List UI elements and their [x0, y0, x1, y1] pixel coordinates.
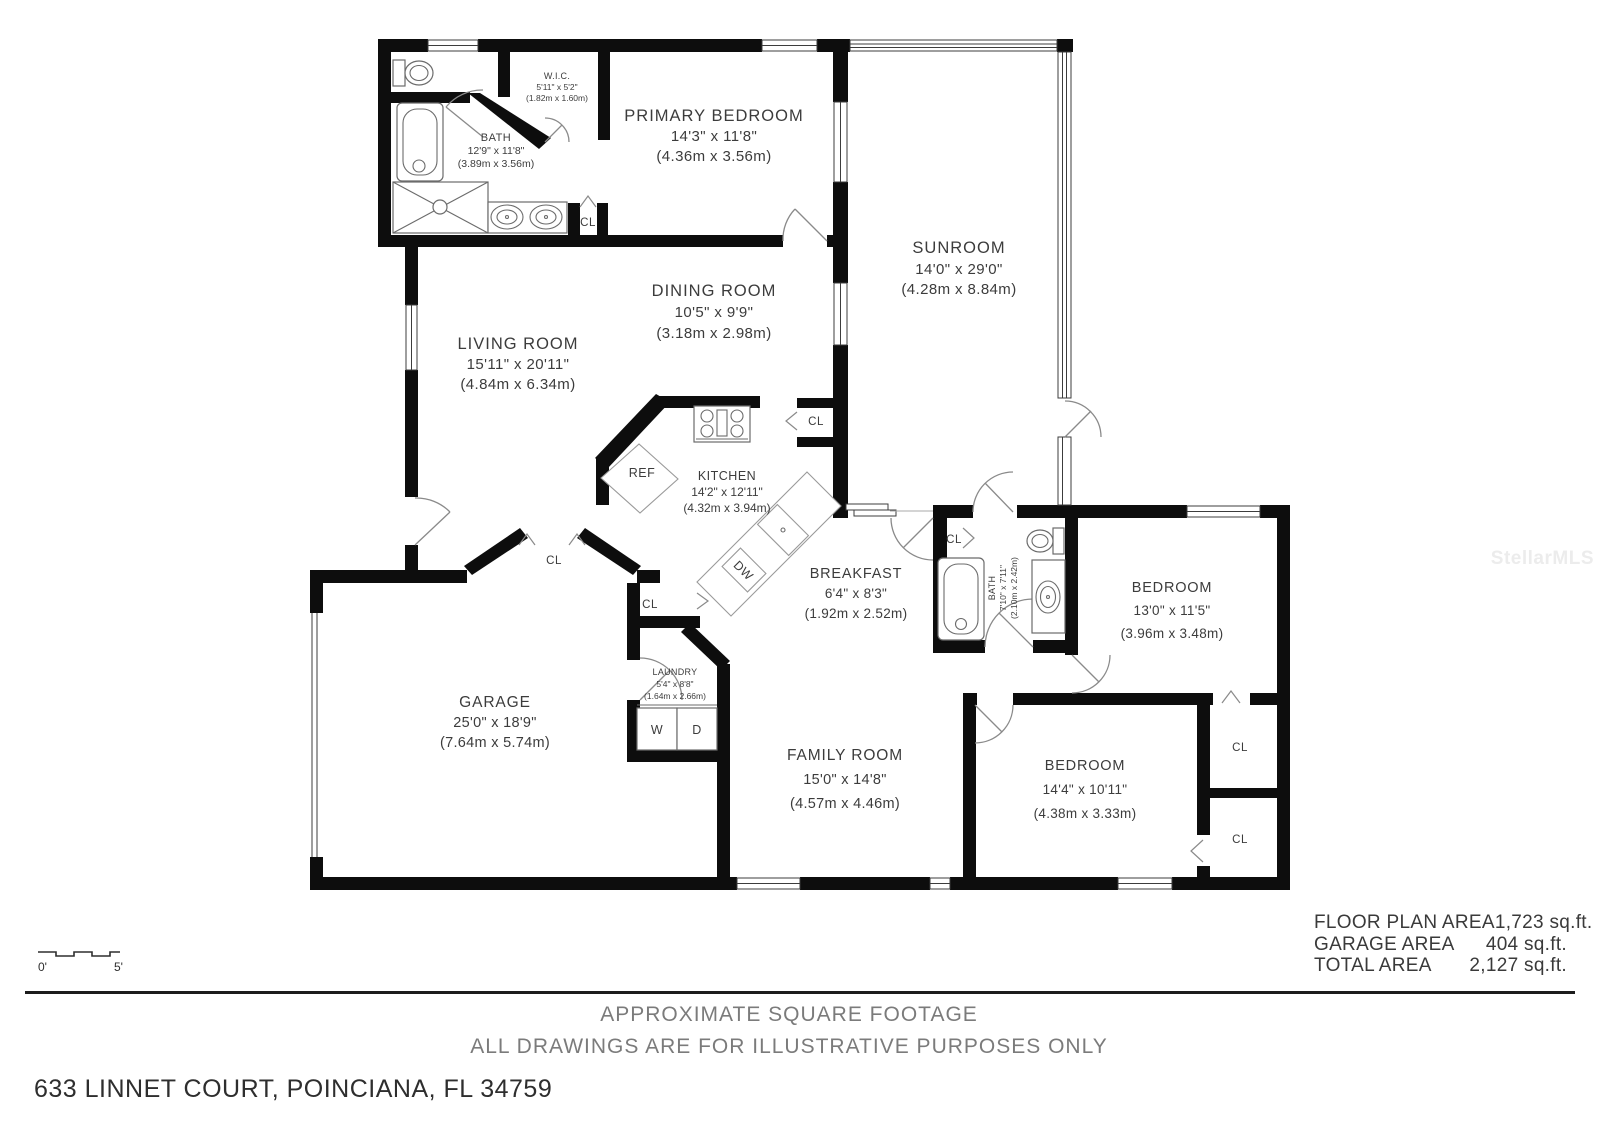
window-bath-top	[428, 40, 478, 51]
bathtub-icon	[397, 103, 443, 181]
area-value: 1,723 sq.ft.	[1495, 912, 1593, 934]
svg-text:7'10" x 7'11": 7'10" x 7'11"	[998, 565, 1008, 611]
scale-five-label: 5'	[114, 960, 123, 974]
svg-text:14'2" x 12'11": 14'2" x 12'11"	[691, 485, 763, 499]
room-label-breakfast: BREAKFAST 6'4" x 8'3" (1.92m x 2.52m)	[805, 566, 908, 621]
window-bedroom-bottom	[1118, 878, 1172, 889]
scale-zero-label: 0'	[38, 960, 47, 974]
dryer-label: D	[692, 723, 702, 737]
svg-text:LIVING ROOM: LIVING ROOM	[457, 335, 578, 353]
area-label: GARAGE AREA	[1314, 934, 1455, 956]
svg-text:BEDROOM: BEDROOM	[1132, 580, 1213, 596]
svg-text:10'5" x 9'9": 10'5" x 9'9"	[675, 304, 754, 321]
svg-text:6'4" x 8'3": 6'4" x 8'3"	[825, 586, 887, 601]
area-value: 404 sq.ft.	[1486, 934, 1567, 956]
svg-text:(4.38m x 3.33m): (4.38m x 3.33m)	[1034, 806, 1137, 821]
room-label-bath-hall: BATH 7'10" x 7'11" (2.10m x 2.42m)	[987, 557, 1019, 619]
svg-text:BREAKFAST: BREAKFAST	[810, 566, 903, 582]
toilet-icon	[393, 60, 433, 86]
area-row-floor-plan: FLOOR PLAN AREA 1,723 sq.ft.	[1314, 912, 1567, 934]
room-label-living-room: LIVING ROOM 15'11" x 20'11" (4.84m x 6.3…	[457, 335, 578, 393]
window-hall-bottom	[930, 878, 950, 889]
window-sunroom-right-lower	[1058, 437, 1071, 505]
wic-door	[545, 118, 569, 142]
bedroom-bottom-door	[975, 705, 1013, 743]
washer-label: W	[651, 723, 663, 737]
svg-text:13'0" x 11'5": 13'0" x 11'5"	[1134, 603, 1211, 618]
window-sunroom-right-upper	[1058, 52, 1071, 398]
svg-text:(3.96m x 3.48m): (3.96m x 3.48m)	[1121, 626, 1224, 641]
svg-text:(4.28m x 8.84m): (4.28m x 8.84m)	[901, 281, 1016, 298]
svg-text:BATH: BATH	[481, 132, 512, 144]
svg-text:(4.36m x 3.56m): (4.36m x 3.56m)	[656, 148, 771, 165]
floor-plan-page: REF DW	[0, 0, 1600, 1130]
svg-text:W.I.C.: W.I.C.	[544, 71, 570, 81]
svg-text:(7.64m x 5.74m): (7.64m x 5.74m)	[440, 735, 550, 751]
svg-text:(1.92m x 2.52m): (1.92m x 2.52m)	[805, 606, 908, 621]
sliding-door-breakfast-sunroom	[846, 504, 896, 516]
svg-text:5'11" x 5'2": 5'11" x 5'2"	[536, 82, 577, 92]
closet-label-bedroom1: CL	[1232, 742, 1248, 754]
window-family-bottom	[737, 878, 800, 889]
disclaimer-line2: ALL DRAWINGS ARE FOR ILLUSTRATIVE PURPOS…	[0, 1031, 1578, 1063]
disclaimer: APPROXIMATE SQUARE FOOTAGE ALL DRAWINGS …	[0, 999, 1578, 1062]
svg-text:BEDROOM: BEDROOM	[1045, 758, 1126, 774]
property-address: 633 LINNET COURT, POINCIANA, FL 34759	[34, 1075, 552, 1104]
svg-text:(1.82m x 1.60m): (1.82m x 1.60m)	[526, 93, 588, 103]
window-dining-sunroom	[834, 283, 847, 345]
svg-text:14'4" x 10'11": 14'4" x 10'11"	[1043, 782, 1128, 797]
svg-text:(3.18m x 2.98m): (3.18m x 2.98m)	[656, 325, 771, 342]
area-row-total: TOTAL AREA 2,127 sq.ft.	[1314, 955, 1567, 977]
svg-text:(3.89m x 3.56m): (3.89m x 3.56m)	[458, 158, 534, 170]
svg-text:(4.57m x 4.46m): (4.57m x 4.46m)	[790, 796, 900, 812]
svg-text:LAUNDRY: LAUNDRY	[653, 667, 698, 677]
garage-door	[312, 613, 317, 857]
window-primary-top	[762, 40, 817, 51]
svg-text:12'9" x 11'8": 12'9" x 11'8"	[468, 145, 525, 157]
hall-toilet-icon	[1027, 528, 1064, 554]
hall-bathtub-icon	[938, 558, 984, 640]
area-label: TOTAL AREA	[1314, 955, 1432, 977]
double-vanity-icon	[488, 202, 567, 233]
room-label-garage: GARAGE 25'0" x 18'9" (7.64m x 5.74m)	[440, 694, 550, 751]
hall-sunroom-door	[973, 472, 1013, 512]
hall-vanity-icon	[1032, 560, 1065, 633]
svg-text:25'0" x 18'9": 25'0" x 18'9"	[453, 715, 536, 731]
shower-icon	[393, 182, 488, 233]
refrigerator-label: REF	[629, 466, 656, 480]
area-table: FLOOR PLAN AREA 1,723 sq.ft. GARAGE AREA…	[1314, 912, 1567, 977]
svg-text:FAMILY ROOM: FAMILY ROOM	[787, 747, 903, 764]
svg-text:(2.10m x 2.42m): (2.10m x 2.42m)	[1009, 557, 1019, 619]
breakfast-hall-door	[891, 518, 933, 560]
area-label: FLOOR PLAN AREA	[1314, 912, 1495, 934]
front-door	[415, 498, 450, 545]
room-label-bedroom-right: BEDROOM 13'0" x 11'5" (3.96m x 3.48m)	[1121, 580, 1224, 641]
svg-text:15'0" x 14'8": 15'0" x 14'8"	[803, 772, 886, 788]
scale-bar: 0' 5'	[34, 944, 134, 978]
divider-rule	[25, 991, 1575, 994]
svg-text:14'0" x 29'0": 14'0" x 29'0"	[915, 261, 1002, 278]
svg-text:14'3" x 11'8": 14'3" x 11'8"	[671, 128, 757, 145]
pocket-closet-chevron	[697, 593, 708, 609]
closet-label-primary: CL	[580, 217, 596, 229]
svg-text:SUNROOM: SUNROOM	[912, 239, 1005, 257]
room-label-wic: W.I.C. 5'11" x 5'2" (1.82m x 1.60m)	[526, 71, 588, 103]
bedroom-right-door	[1072, 655, 1110, 693]
window-primary-sunroom	[834, 102, 847, 182]
room-label-kitchen: KITCHEN 14'2" x 12'11" (4.32m x 3.94m)	[683, 469, 770, 515]
closet-label-entry: CL	[546, 555, 562, 567]
svg-text:(1.64m x 2.66m): (1.64m x 2.66m)	[644, 691, 706, 701]
primary-bedroom-door	[783, 209, 827, 241]
area-row-garage: GARAGE AREA 404 sq.ft.	[1314, 934, 1567, 956]
svg-text:DINING ROOM: DINING ROOM	[652, 282, 777, 300]
closet2-chevron	[1191, 840, 1203, 862]
closet-label-bedroom2: CL	[1232, 834, 1248, 846]
washer-dryer-icons: W D	[637, 705, 717, 750]
room-label-family-room: FAMILY ROOM 15'0" x 14'8" (4.57m x 4.46m…	[787, 747, 903, 812]
sunroom-exterior-door	[1065, 401, 1101, 437]
svg-text:GARAGE: GARAGE	[459, 694, 531, 711]
svg-text:BATH: BATH	[987, 576, 997, 601]
room-label-bedroom-bottom: BEDROOM 14'4" x 10'11" (4.38m x 3.33m)	[1034, 758, 1137, 821]
room-label-dining-room: DINING ROOM 10'5" x 9'9" (3.18m x 2.98m)	[652, 282, 777, 342]
room-label-bath-primary: BATH 12'9" x 11'8" (3.89m x 3.56m)	[458, 132, 534, 170]
floor-plan-drawing: REF DW	[0, 0, 1600, 900]
closet-label-pocket: CL	[642, 599, 658, 611]
svg-text:KITCHEN: KITCHEN	[698, 469, 756, 483]
primary-closet-chevron	[580, 196, 596, 207]
room-label-primary-bedroom: PRIMARY BEDROOM 14'3" x 11'8" (4.36m x 3…	[624, 107, 803, 165]
window-sunroom-top	[850, 40, 1057, 51]
disclaimer-line1: APPROXIMATE SQUARE FOOTAGE	[0, 999, 1578, 1031]
stellar-mls-watermark: StellarMLS	[1491, 548, 1594, 570]
room-label-sunroom: SUNROOM 14'0" x 29'0" (4.28m x 8.84m)	[901, 239, 1016, 298]
linen-closet-chevron	[963, 528, 974, 548]
svg-text:(4.84m x 6.34m): (4.84m x 6.34m)	[460, 376, 575, 393]
svg-text:PRIMARY BEDROOM: PRIMARY BEDROOM	[624, 107, 803, 125]
stove-icon	[694, 406, 750, 442]
window-living-left	[406, 305, 417, 370]
room-label-laundry: LAUNDRY 5'4" x 8'8" (1.64m x 2.66m)	[644, 667, 706, 701]
closet-label-dining: CL	[808, 416, 824, 428]
svg-text:(4.32m x 3.94m): (4.32m x 3.94m)	[683, 501, 770, 515]
closet-label-linen: CL	[946, 534, 962, 546]
window-bedroom-right-top	[1187, 506, 1260, 517]
svg-text:5'4" x 8'8": 5'4" x 8'8"	[656, 679, 693, 689]
dining-closet-chevron	[786, 412, 797, 430]
svg-text:15'11" x 20'11": 15'11" x 20'11"	[467, 356, 570, 373]
area-value: 2,127 sq.ft.	[1469, 955, 1567, 977]
closet1-chevron	[1222, 691, 1240, 703]
